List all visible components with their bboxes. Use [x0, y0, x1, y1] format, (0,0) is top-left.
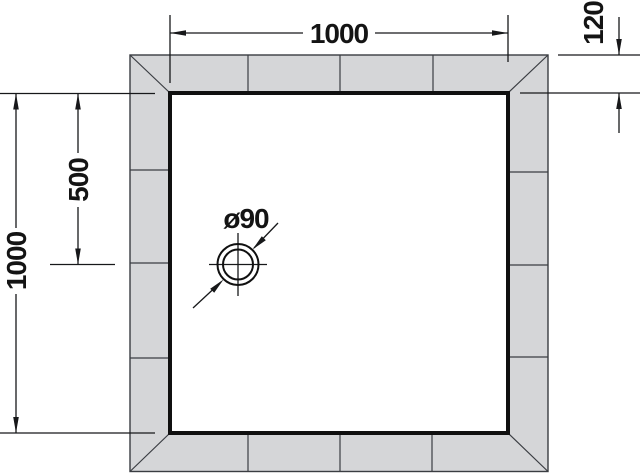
arrowhead-up: [75, 94, 81, 110]
shower-tray-plan-svg: ø90 1000 120: [0, 0, 640, 474]
arrowhead-up: [13, 94, 19, 110]
dim-label-top-width: 1000: [310, 18, 369, 49]
arrowhead-right: [492, 30, 508, 36]
dim-drain-offset: 500: [50, 94, 115, 265]
dim-label-drain-offset: 500: [63, 158, 94, 202]
dim-label-surround-depth: 120: [578, 1, 609, 45]
arrowhead-down: [75, 249, 81, 265]
arrowhead-down: [13, 417, 19, 433]
dim-label-drain-diameter: ø90: [223, 203, 269, 234]
arrowhead-down: [616, 39, 622, 55]
technical-drawing-canvas: ø90 1000 120: [0, 0, 640, 474]
dim-label-left-height: 1000: [1, 231, 32, 290]
tray-inner-surface: [170, 93, 508, 433]
arrowhead-left: [170, 30, 186, 36]
arrowhead-up: [616, 93, 622, 109]
